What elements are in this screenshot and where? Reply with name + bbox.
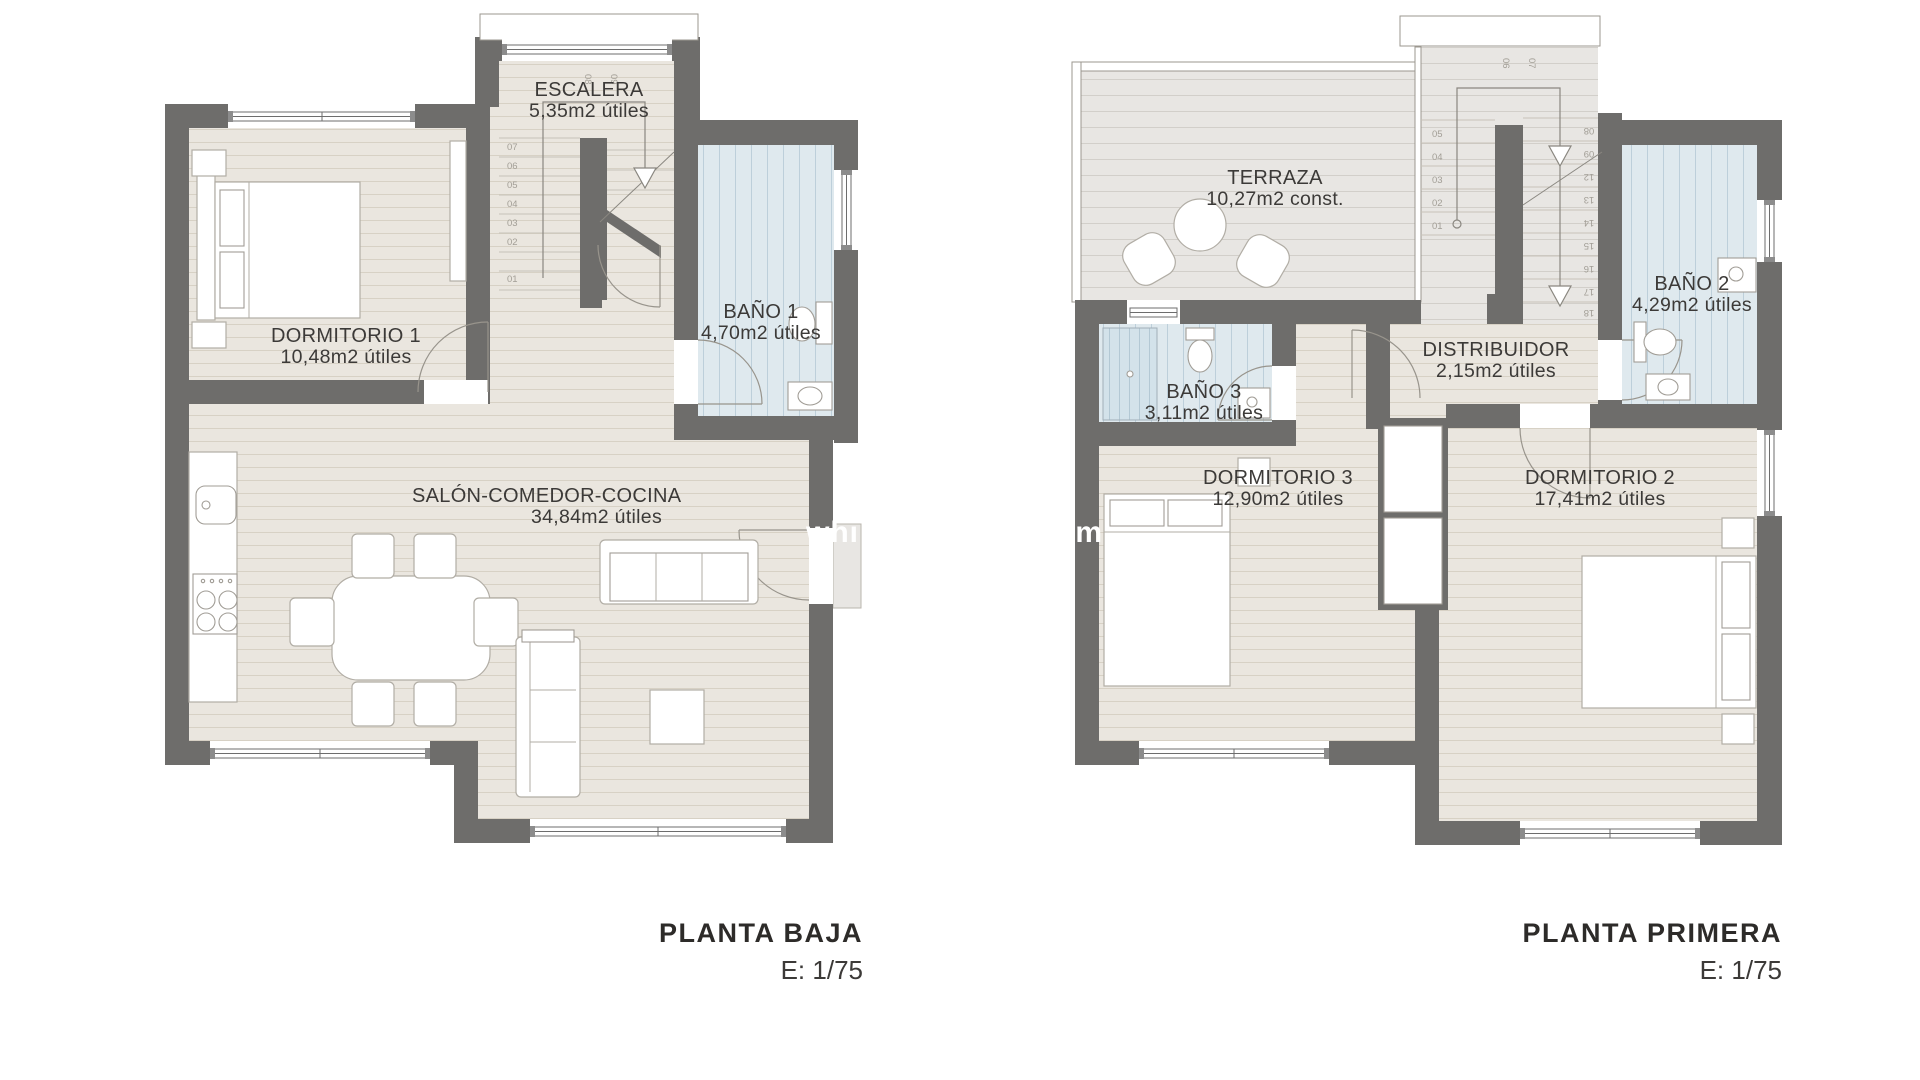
watermark-fragment: whi [806, 516, 859, 550]
window [1757, 430, 1782, 516]
step-number: 05 [1432, 129, 1443, 140]
step-number: 16 [1584, 263, 1595, 274]
room-label-terraza: TERRAZA 10,27m2 const. [1180, 168, 1370, 210]
room-label-salon-comedor-cocina: SALÓN-COMEDOR-COCINA 34,84m2 útiles [412, 486, 662, 528]
stair-roof-outline [480, 14, 698, 40]
stair-roof-outline [1400, 16, 1600, 46]
room-label-dormitorio-3: DORMITORIO 3 12,90m2 útiles [1176, 468, 1380, 510]
room-label-dormitorio-1: DORMITORIO 1 10,48m2 útiles [240, 326, 452, 368]
step-number: 04 [507, 199, 518, 210]
step-number: 04 [1432, 152, 1443, 163]
window [210, 741, 430, 765]
step-number: 07 [507, 142, 518, 153]
window [834, 170, 858, 250]
sofa [600, 540, 758, 604]
window [228, 104, 415, 128]
window [502, 37, 672, 61]
step-number: 01 [507, 274, 518, 285]
room-label-distribuidor: DISTRIBUIDOR 2,15m2 útiles [1398, 340, 1594, 382]
plan-scale: E: 1/75 [560, 955, 863, 986]
step-number: 02 [507, 237, 518, 248]
chaise [516, 630, 580, 797]
closet [1384, 518, 1442, 604]
caption-planta-primera: PLANTA PRIMERA E: 1/75 [1478, 918, 1782, 986]
room-label-escalera: ESCALERA 5,35m2 útiles [496, 80, 682, 122]
room-label-bano-2: BAÑO 2 4,29m2 útiles [1608, 274, 1776, 316]
room-label-bano-1: BAÑO 1 4,70m2 útiles [676, 302, 846, 344]
bed-1 [215, 182, 360, 318]
closet-strip [197, 155, 215, 320]
side-table [650, 690, 704, 744]
plan-planta-primera: 05 04 03 02 01 06 07 08 09 12 13 14 15 1… [1072, 16, 1782, 845]
closet [1384, 426, 1442, 512]
window [1757, 200, 1782, 262]
toilet [1188, 340, 1212, 372]
step-number: 15 [1584, 240, 1595, 251]
bed-2 [1582, 556, 1756, 708]
step-number: 06 [1500, 58, 1511, 69]
floorplan-page: { "document": { "background": "#ffffff" … [0, 0, 1920, 1080]
plan-scale: E: 1/75 [1478, 955, 1782, 986]
plan-title: PLANTA BAJA [560, 918, 863, 949]
bed-3 [1104, 494, 1230, 686]
kitchen [189, 452, 237, 702]
window [530, 819, 786, 843]
room-label-dormitorio-2: DORMITORIO 2 17,41m2 útiles [1498, 468, 1702, 510]
step-number: 14 [1584, 217, 1595, 228]
step-number: 09 [1584, 148, 1595, 159]
step-number: 02 [1432, 198, 1443, 209]
step-number: 03 [507, 218, 518, 229]
nightstand [1722, 714, 1754, 744]
window [1127, 300, 1180, 324]
step-number: 05 [507, 180, 518, 191]
step-number: 17 [1584, 286, 1595, 297]
plan-title: PLANTA PRIMERA [1478, 918, 1782, 949]
step-number: 18 [1584, 307, 1595, 318]
window [1139, 741, 1329, 765]
step-number: 03 [1432, 175, 1443, 186]
step-number: 12 [1584, 171, 1595, 182]
watermark-fragment: om [1056, 516, 1103, 550]
step-number: 01 [1432, 221, 1443, 232]
sink [788, 382, 832, 410]
step-number: 06 [507, 161, 518, 172]
toilet [1644, 329, 1676, 355]
plan-planta-baja: 07 06 05 04 03 02 01 08 09 [160, 14, 861, 845]
nightstand [192, 322, 226, 348]
step-number: 13 [1584, 194, 1595, 205]
room-label-bano-3: BAÑO 3 3,11m2 útiles [1126, 382, 1282, 424]
nightstand [192, 150, 226, 176]
step-number: 07 [1526, 58, 1537, 69]
window [1520, 821, 1700, 845]
nightstand [1722, 518, 1754, 548]
caption-planta-baja: PLANTA BAJA E: 1/75 [560, 918, 863, 986]
step-number: 08 [1584, 125, 1595, 136]
wardrobe [450, 141, 466, 281]
